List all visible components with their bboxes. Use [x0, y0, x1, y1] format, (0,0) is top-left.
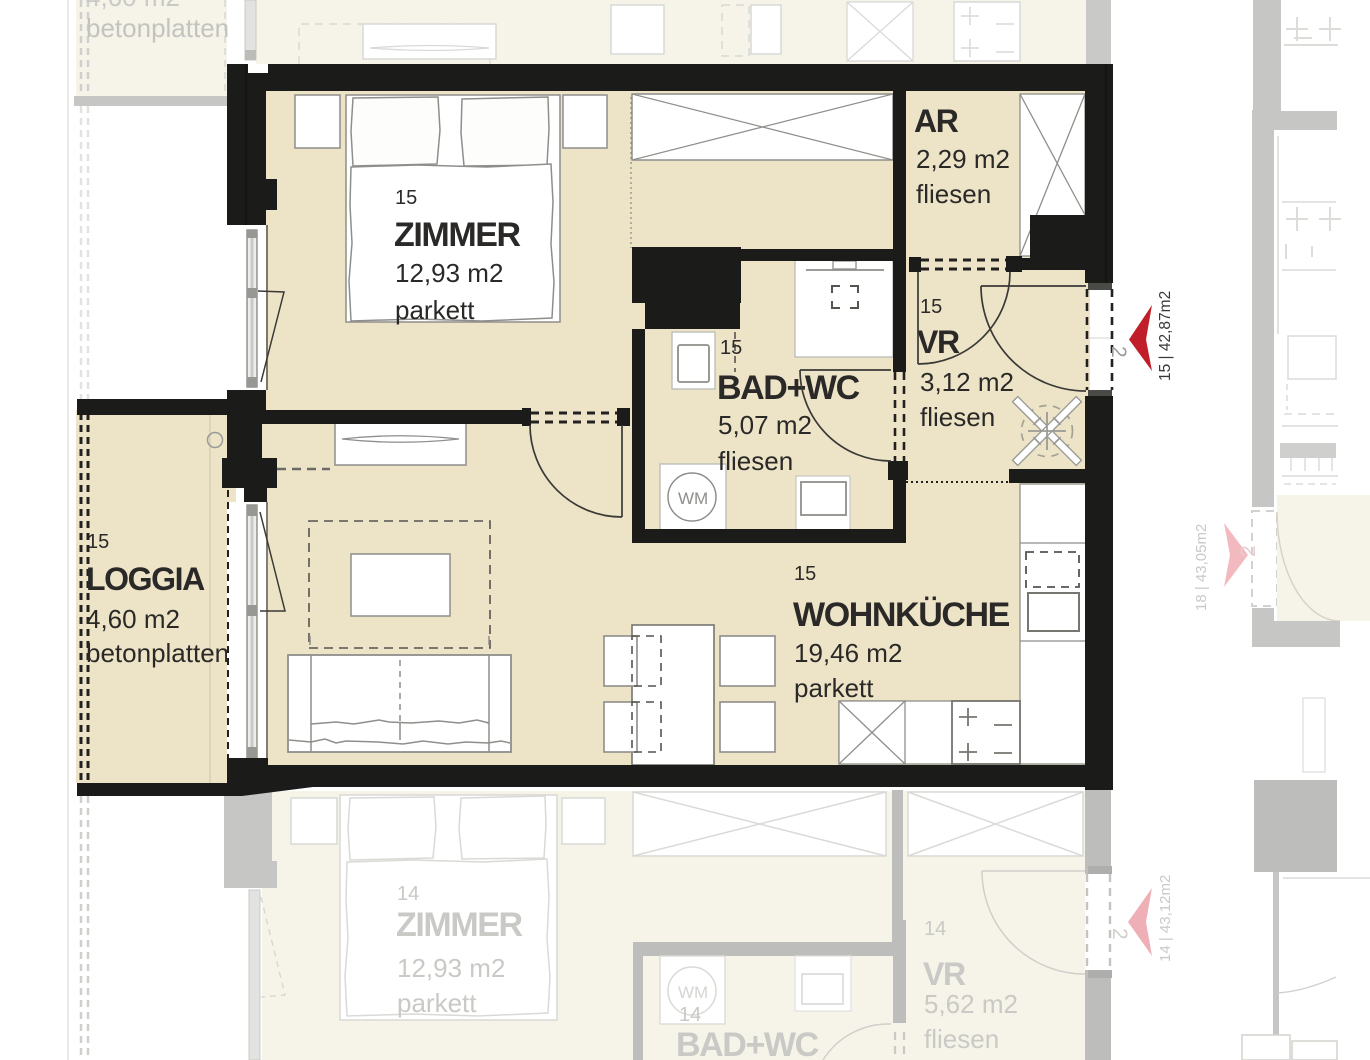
svg-text:parkett: parkett	[794, 673, 874, 703]
svg-text:5,07 m2: 5,07 m2	[718, 410, 812, 440]
svg-text:14: 14	[679, 1004, 701, 1026]
svg-text:15 | 42,87m2: 15 | 42,87m2	[1157, 291, 1174, 381]
svg-text:fliesen: fliesen	[924, 1024, 999, 1054]
svg-text:4,60 m2: 4,60 m2	[86, 0, 180, 12]
svg-text:betonplatten: betonplatten	[86, 638, 229, 668]
svg-text:12,93 m2: 12,93 m2	[397, 953, 505, 983]
svg-text:WM: WM	[678, 983, 708, 1002]
svg-text:15: 15	[395, 187, 417, 209]
svg-text:5,62 m2: 5,62 m2	[924, 989, 1018, 1019]
svg-text:VR: VR	[923, 956, 966, 992]
svg-text:parkett: parkett	[395, 295, 475, 325]
svg-text:14: 14	[924, 918, 946, 940]
svg-text:14: 14	[397, 883, 419, 905]
svg-text:15: 15	[87, 531, 109, 553]
svg-text:2,29 m2: 2,29 m2	[916, 144, 1010, 174]
svg-text:fliesen: fliesen	[718, 446, 793, 476]
svg-text:18 | 43,05m2: 18 | 43,05m2	[1193, 524, 1210, 611]
svg-text:14 | 43,12m2: 14 | 43,12m2	[1157, 875, 1174, 962]
svg-text:2: 2	[1237, 545, 1260, 557]
svg-text:3,12 m2: 3,12 m2	[920, 367, 1014, 397]
svg-text:12,93 m2: 12,93 m2	[395, 258, 503, 288]
svg-text:betonplatten: betonplatten	[86, 13, 229, 43]
svg-text:fliesen: fliesen	[920, 402, 995, 432]
svg-text:parkett: parkett	[397, 988, 477, 1018]
svg-text:19,46 m2: 19,46 m2	[794, 638, 902, 668]
svg-text:fliesen: fliesen	[916, 179, 991, 209]
svg-text:LOGGIA: LOGGIA	[86, 561, 205, 597]
svg-text:ZIMMER: ZIMMER	[394, 216, 521, 254]
svg-text:15: 15	[720, 337, 742, 359]
svg-text:BAD+WC: BAD+WC	[717, 369, 860, 407]
svg-text:BAD+WC: BAD+WC	[676, 1026, 819, 1060]
svg-text:WOHNKÜCHE: WOHNKÜCHE	[793, 596, 1010, 634]
svg-text:WM: WM	[678, 489, 708, 508]
svg-text:15: 15	[794, 563, 816, 585]
svg-text:15: 15	[920, 296, 942, 318]
svg-text:AR: AR	[914, 103, 959, 139]
svg-text:VR: VR	[917, 324, 960, 360]
svg-text:4,60 m2: 4,60 m2	[86, 604, 180, 634]
svg-text:2: 2	[1108, 928, 1131, 940]
svg-text:ZIMMER: ZIMMER	[396, 906, 523, 944]
svg-text:2: 2	[1107, 346, 1130, 358]
